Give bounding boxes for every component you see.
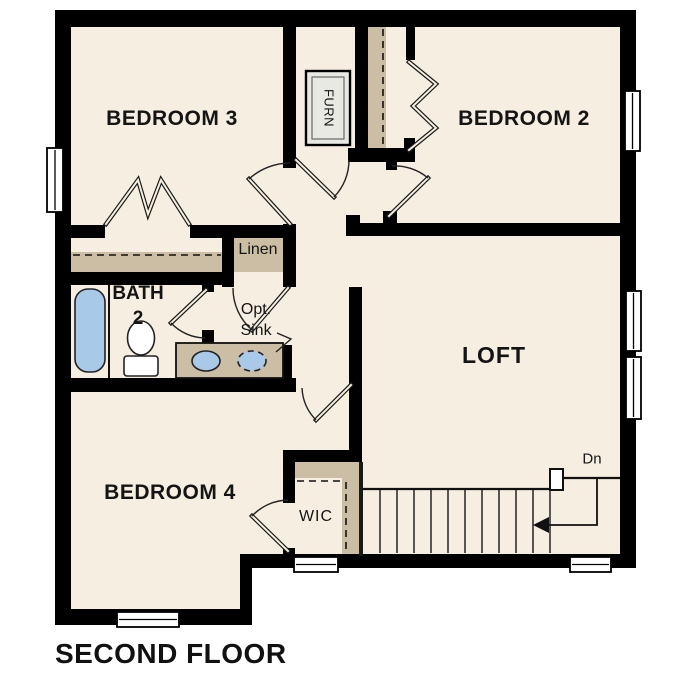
label-opt-line1: Opt. (240, 299, 271, 320)
bathtub (75, 285, 109, 378)
label-bath-line1: BATH (112, 281, 163, 306)
label-linen: Linen (238, 241, 277, 259)
label-bath-2: BATH 2 (112, 281, 163, 331)
floor-plan-page: BEDROOM 3 BEDROOM 2 LOFT BEDROOM 4 BATH … (0, 0, 687, 687)
label-opt-line2: Sink (240, 320, 271, 341)
label-bedroom-3: BEDROOM 3 (106, 107, 238, 131)
label-stairs-down: Dn (582, 450, 601, 467)
label-wic: WIC (299, 508, 333, 526)
label-bedroom-2: BEDROOM 2 (458, 107, 590, 131)
label-optional-sink: Opt. Sink (240, 299, 271, 341)
label-loft: LOFT (462, 342, 526, 368)
page-title: SECOND FLOOR (55, 638, 287, 670)
label-furnace: FURN (321, 89, 336, 127)
label-bedroom-4: BEDROOM 4 (104, 481, 236, 505)
floor-plan-drawing (0, 0, 687, 687)
label-bath-line2: 2 (112, 306, 163, 331)
